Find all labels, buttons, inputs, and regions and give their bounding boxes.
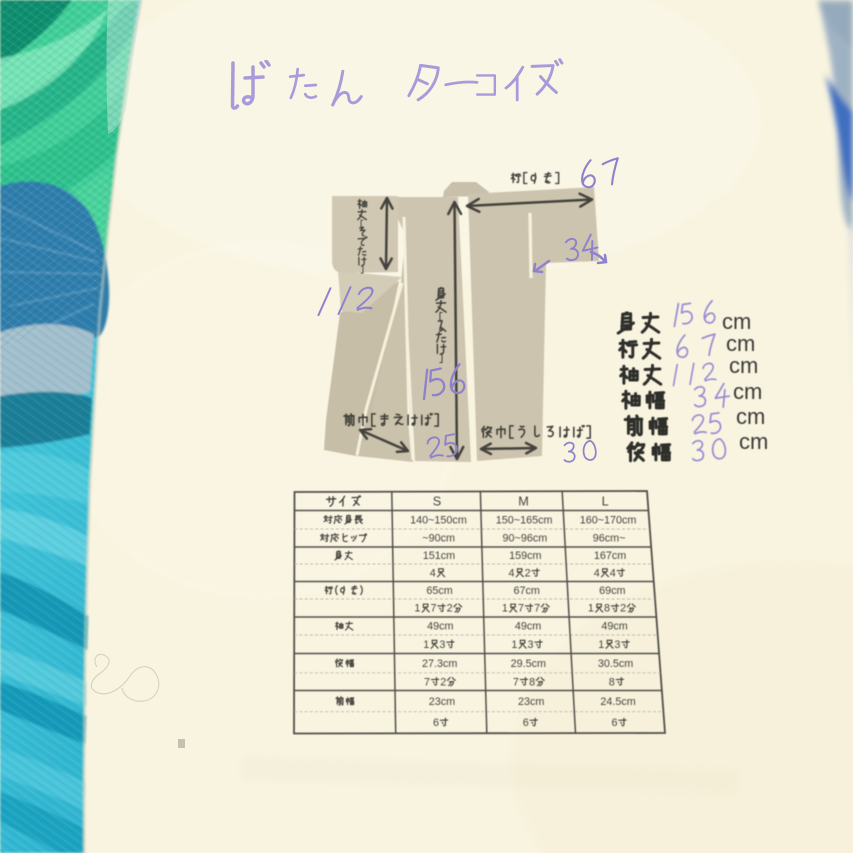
svg-text:1: 1	[423, 639, 429, 651]
svg-text:67cm: 67cm	[514, 585, 540, 597]
svg-text:7: 7	[424, 676, 430, 688]
svg-text:23cm: 23cm	[518, 696, 544, 708]
svg-text:6: 6	[612, 717, 618, 729]
svg-text:151cm: 151cm	[423, 550, 455, 562]
svg-text:8: 8	[529, 676, 535, 688]
svg-text:90~96cm: 90~96cm	[503, 533, 548, 545]
svg-text:2: 2	[525, 567, 531, 579]
svg-text:8: 8	[604, 603, 610, 615]
svg-text:M: M	[518, 495, 529, 509]
svg-text:4: 4	[610, 567, 616, 579]
svg-text:1: 1	[502, 603, 508, 615]
svg-text:69cm: 69cm	[599, 585, 625, 597]
svg-text:3: 3	[614, 639, 620, 651]
svg-text:4: 4	[509, 567, 515, 579]
svg-text:2: 2	[440, 676, 446, 688]
svg-text:96cm~: 96cm~	[593, 533, 626, 545]
svg-text:7: 7	[431, 603, 437, 615]
svg-text:7: 7	[534, 603, 540, 615]
svg-text:1: 1	[588, 603, 594, 615]
svg-text:30.5cm: 30.5cm	[598, 658, 633, 670]
svg-text:159cm: 159cm	[509, 550, 541, 562]
svg-text:23cm: 23cm	[429, 696, 455, 708]
svg-text:7: 7	[513, 676, 519, 688]
svg-text:140~150cm: 140~150cm	[410, 514, 467, 526]
svg-text:L: L	[602, 495, 609, 509]
svg-text:27.3cm: 27.3cm	[422, 658, 457, 670]
svg-text:cm: cm	[736, 404, 765, 429]
svg-text:3: 3	[439, 639, 445, 651]
svg-text:2: 2	[447, 603, 453, 615]
svg-text:S: S	[433, 495, 441, 509]
svg-text:49cm: 49cm	[427, 621, 453, 633]
svg-text:1: 1	[598, 639, 604, 651]
svg-text:24.5cm: 24.5cm	[600, 696, 635, 708]
svg-text:3: 3	[528, 639, 534, 651]
svg-text:49cm: 49cm	[601, 621, 627, 633]
svg-text:167cm: 167cm	[594, 550, 626, 562]
svg-text:29.5cm: 29.5cm	[511, 658, 546, 670]
svg-text:65cm: 65cm	[426, 585, 452, 597]
svg-text:4: 4	[430, 567, 436, 579]
svg-text:160~170cm: 160~170cm	[580, 514, 637, 526]
svg-text:2: 2	[620, 603, 626, 615]
svg-text:6: 6	[523, 717, 529, 729]
svg-text:~90cm: ~90cm	[422, 533, 455, 545]
svg-text:7: 7	[518, 603, 524, 615]
svg-text:cm: cm	[739, 429, 768, 454]
svg-text:cm: cm	[729, 353, 758, 378]
svg-text:1: 1	[414, 603, 420, 615]
svg-text:150~165cm: 150~165cm	[496, 514, 553, 526]
svg-text:1: 1	[511, 639, 517, 651]
svg-text:cm: cm	[733, 379, 762, 404]
svg-text:4: 4	[594, 567, 600, 579]
svg-text:8: 8	[609, 676, 615, 688]
svg-text:6: 6	[433, 717, 439, 729]
svg-text:49cm: 49cm	[515, 621, 541, 633]
